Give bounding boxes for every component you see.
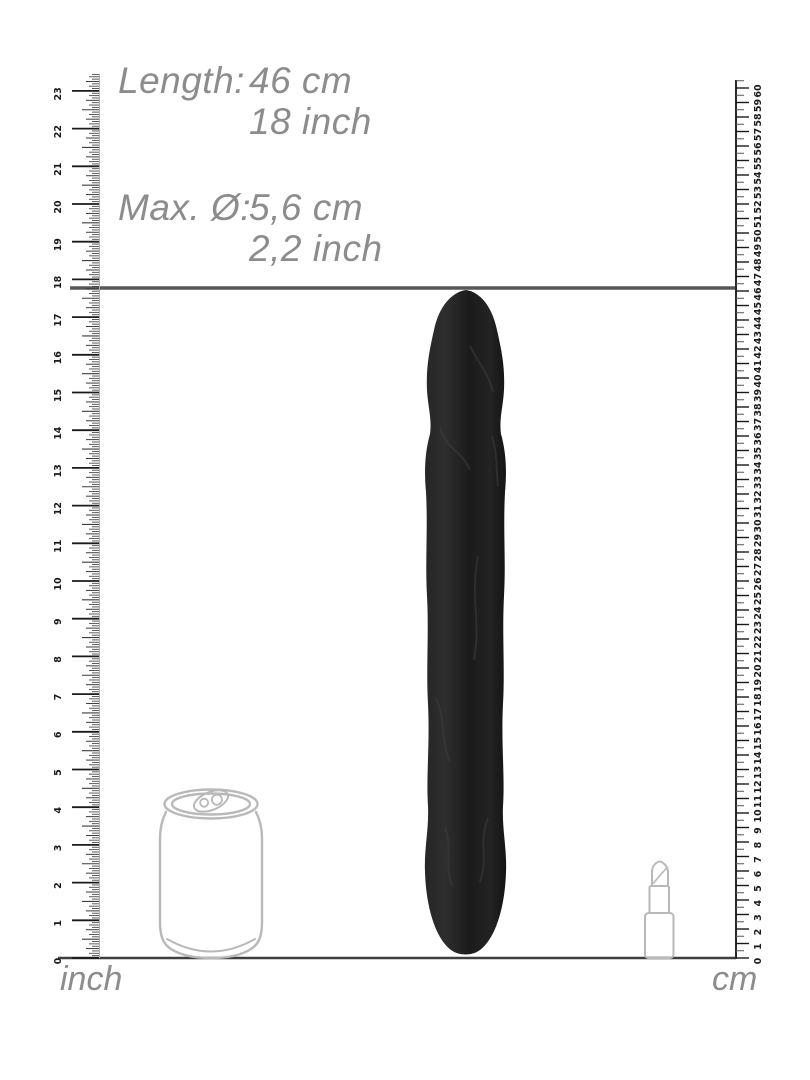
svg-text:16: 16 bbox=[53, 351, 64, 365]
svg-text:6: 6 bbox=[53, 731, 64, 738]
svg-text:2: 2 bbox=[53, 882, 64, 889]
diameter-label: Max. Ø: bbox=[118, 187, 243, 228]
svg-text:19: 19 bbox=[753, 679, 764, 692]
svg-text:50: 50 bbox=[753, 229, 764, 243]
svg-text:42: 42 bbox=[753, 345, 764, 358]
svg-text:13: 13 bbox=[53, 464, 64, 477]
svg-text:19: 19 bbox=[53, 238, 64, 251]
svg-text:33: 33 bbox=[753, 476, 764, 489]
svg-text:28: 28 bbox=[753, 548, 764, 562]
svg-text:20: 20 bbox=[53, 200, 64, 214]
svg-text:21: 21 bbox=[753, 650, 764, 663]
svg-text:21: 21 bbox=[53, 163, 64, 176]
svg-text:46: 46 bbox=[753, 287, 764, 301]
svg-text:2: 2 bbox=[753, 929, 764, 936]
svg-text:52: 52 bbox=[753, 200, 764, 213]
svg-text:43: 43 bbox=[753, 331, 764, 344]
svg-text:16: 16 bbox=[753, 722, 764, 736]
svg-text:55: 55 bbox=[753, 157, 764, 170]
svg-text:22: 22 bbox=[53, 125, 64, 138]
svg-text:17: 17 bbox=[53, 313, 64, 326]
svg-text:49: 49 bbox=[753, 244, 764, 257]
svg-text:39: 39 bbox=[753, 389, 764, 402]
svg-text:7: 7 bbox=[53, 694, 64, 701]
svg-text:15: 15 bbox=[53, 389, 64, 402]
length-metric: 46 cm bbox=[249, 60, 383, 101]
svg-text:37: 37 bbox=[753, 418, 764, 431]
svg-text:31: 31 bbox=[753, 505, 764, 518]
svg-text:24: 24 bbox=[753, 606, 764, 620]
svg-text:9: 9 bbox=[53, 618, 64, 625]
size-diagram: 01234567891011121314151617181920212223 0… bbox=[0, 0, 810, 1080]
svg-text:20: 20 bbox=[753, 664, 764, 678]
svg-text:17: 17 bbox=[753, 708, 764, 721]
svg-text:26: 26 bbox=[753, 577, 764, 591]
svg-text:25: 25 bbox=[753, 592, 764, 605]
svg-text:11: 11 bbox=[53, 540, 64, 553]
svg-text:47: 47 bbox=[753, 273, 764, 286]
svg-text:54: 54 bbox=[753, 171, 764, 185]
svg-text:57: 57 bbox=[753, 128, 764, 141]
length-imperial: 18 inch bbox=[249, 101, 383, 142]
svg-text:1: 1 bbox=[753, 943, 764, 950]
svg-text:12: 12 bbox=[53, 502, 64, 515]
svg-text:41: 41 bbox=[753, 360, 764, 373]
lipstick-outline bbox=[645, 862, 674, 958]
svg-text:4: 4 bbox=[53, 807, 64, 814]
svg-text:48: 48 bbox=[753, 258, 764, 272]
cm-ruler: 0123456789101112131415161718192021222324… bbox=[736, 80, 764, 964]
svg-text:7: 7 bbox=[753, 856, 764, 863]
svg-text:44: 44 bbox=[753, 316, 764, 330]
svg-text:32: 32 bbox=[753, 490, 764, 503]
svg-text:8: 8 bbox=[753, 841, 764, 848]
svg-text:5: 5 bbox=[753, 885, 764, 892]
svg-text:22: 22 bbox=[753, 635, 764, 648]
svg-text:4: 4 bbox=[753, 899, 764, 906]
svg-text:3: 3 bbox=[53, 845, 64, 852]
inch-unit-label: inch bbox=[60, 960, 122, 999]
svg-text:23: 23 bbox=[753, 621, 764, 634]
svg-text:27: 27 bbox=[753, 563, 764, 576]
svg-text:60: 60 bbox=[753, 84, 764, 98]
svg-text:15: 15 bbox=[753, 737, 764, 750]
svg-text:10: 10 bbox=[753, 809, 764, 823]
cm-unit-label: cm bbox=[712, 960, 757, 999]
svg-text:18: 18 bbox=[53, 275, 64, 289]
svg-text:59: 59 bbox=[753, 99, 764, 112]
svg-text:36: 36 bbox=[753, 432, 764, 446]
svg-text:11: 11 bbox=[753, 795, 764, 808]
inch-ruler: 01234567891011121314151617181920212223 bbox=[53, 74, 100, 964]
svg-text:5: 5 bbox=[53, 769, 64, 776]
svg-text:40: 40 bbox=[753, 374, 764, 388]
soda-can-outline bbox=[160, 786, 262, 958]
svg-text:51: 51 bbox=[753, 215, 764, 228]
svg-text:13: 13 bbox=[753, 766, 764, 779]
svg-text:38: 38 bbox=[753, 403, 764, 417]
svg-text:10: 10 bbox=[53, 577, 64, 591]
svg-text:30: 30 bbox=[753, 519, 764, 533]
svg-text:34: 34 bbox=[753, 461, 764, 475]
svg-text:18: 18 bbox=[753, 693, 764, 707]
svg-text:14: 14 bbox=[753, 751, 764, 765]
svg-text:45: 45 bbox=[753, 302, 764, 315]
svg-text:56: 56 bbox=[753, 142, 764, 156]
svg-text:12: 12 bbox=[753, 780, 764, 793]
svg-text:6: 6 bbox=[753, 870, 764, 877]
svg-text:29: 29 bbox=[753, 534, 764, 547]
svg-text:9: 9 bbox=[753, 827, 764, 834]
svg-text:23: 23 bbox=[53, 87, 64, 100]
svg-text:1: 1 bbox=[53, 920, 64, 927]
svg-text:58: 58 bbox=[753, 113, 764, 127]
svg-text:14: 14 bbox=[53, 426, 64, 440]
dimension-annotations: Length: 46 cm 18 inch Max. Ø: 5,6 cm 2,2… bbox=[118, 60, 383, 269]
diameter-imperial: 2,2 inch bbox=[249, 228, 383, 269]
svg-text:3: 3 bbox=[753, 914, 764, 921]
svg-text:35: 35 bbox=[753, 447, 764, 460]
length-label: Length: bbox=[118, 60, 243, 101]
product-silhouette bbox=[425, 290, 506, 955]
svg-text:53: 53 bbox=[753, 186, 764, 199]
diameter-metric: 5,6 cm bbox=[249, 187, 383, 228]
svg-text:8: 8 bbox=[53, 656, 64, 663]
